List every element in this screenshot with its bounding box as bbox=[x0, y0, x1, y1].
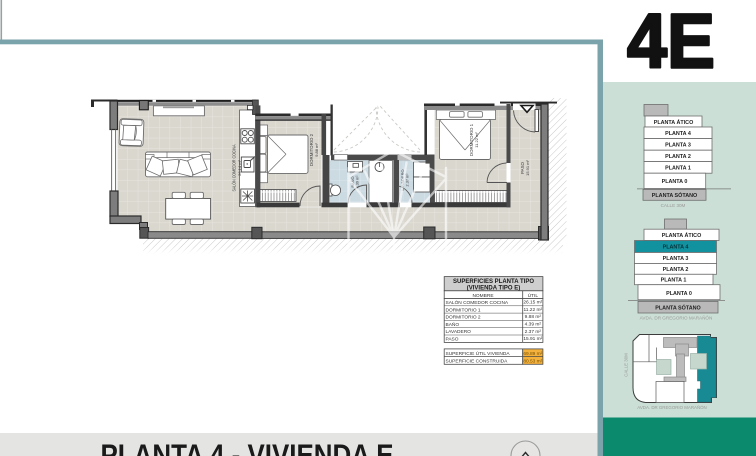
svg-text:(VIVIENDA TIPO E): (VIVIENDA TIPO E) bbox=[467, 286, 520, 292]
svg-text:DORMITORIO 2: DORMITORIO 2 bbox=[446, 315, 481, 321]
svg-text:PLANTA 4 - VIVIENDA E: PLANTA 4 - VIVIENDA E bbox=[101, 439, 394, 456]
svg-text:PLANTA SÓTANO: PLANTA SÓTANO bbox=[655, 304, 700, 312]
svg-text:CALLE 30M: CALLE 30M bbox=[624, 353, 629, 377]
svg-text:4E: 4E bbox=[627, 0, 715, 85]
svg-text:LAVADERO: LAVADERO bbox=[446, 329, 472, 335]
svg-text:26.14 m²: 26.14 m² bbox=[237, 159, 242, 175]
svg-text:PLANTA ÁTICO: PLANTA ÁTICO bbox=[662, 232, 702, 239]
svg-text:15.91 m²: 15.91 m² bbox=[525, 159, 530, 175]
svg-text:11.22 m²: 11.22 m² bbox=[524, 307, 543, 313]
svg-text:SALÓN COMEDOR COCINA: SALÓN COMEDOR COCINA bbox=[232, 144, 237, 191]
svg-text:PLANTA 4: PLANTA 4 bbox=[663, 245, 689, 251]
svg-text:ÚTIL: ÚTIL bbox=[528, 292, 539, 299]
svg-text:69.89 m²: 69.89 m² bbox=[523, 351, 542, 357]
svg-text:PLANTA 1: PLANTA 1 bbox=[665, 166, 691, 172]
svg-text:11.22 m²: 11.22 m² bbox=[474, 132, 479, 148]
svg-text:2.37 m²: 2.37 m² bbox=[406, 173, 410, 187]
svg-text:SUPERFICIE CONSTRUIDA: SUPERFICIE CONSTRUIDA bbox=[446, 358, 509, 364]
svg-text:DORMITORIO 1: DORMITORIO 1 bbox=[446, 307, 481, 313]
svg-text:PLANTA SÓTANO: PLANTA SÓTANO bbox=[652, 191, 697, 199]
svg-text:PLANTA 3: PLANTA 3 bbox=[663, 256, 689, 262]
svg-text:80.53 m²: 80.53 m² bbox=[523, 358, 542, 364]
svg-text:SALÓN COMEDOR COCINA: SALÓN COMEDOR COCINA bbox=[446, 299, 509, 306]
svg-text:PLANTA 0: PLANTA 0 bbox=[666, 291, 692, 297]
svg-text:BAÑO: BAÑO bbox=[446, 321, 460, 328]
svg-text:PLANTA 4: PLANTA 4 bbox=[665, 131, 691, 137]
svg-text:SUPERFICIE ÚTIL VIVIENDA: SUPERFICIE ÚTIL VIVIENDA bbox=[446, 350, 511, 357]
svg-text:SUPERFICIES PLANTA TIPO: SUPERFICIES PLANTA TIPO bbox=[453, 279, 534, 285]
svg-text:CALLE 30M: CALLE 30M bbox=[661, 203, 686, 208]
svg-text:AVDA. DR GREGORIO MARAÑÓN: AVDA. DR GREGORIO MARAÑÓN bbox=[637, 405, 706, 410]
svg-text:PLANTA 2: PLANTA 2 bbox=[665, 154, 691, 160]
svg-text:AVDA. DR GREGORIO MARAÑÓN: AVDA. DR GREGORIO MARAÑÓN bbox=[640, 315, 713, 321]
svg-text:2.37 m²: 2.37 m² bbox=[525, 329, 542, 335]
svg-text:PLANTA 0: PLANTA 0 bbox=[662, 179, 688, 185]
svg-text:PLANTA ÁTICO: PLANTA ÁTICO bbox=[654, 119, 694, 126]
svg-text:NOMBRE: NOMBRE bbox=[472, 293, 493, 299]
svg-text:9.88 m²: 9.88 m² bbox=[525, 314, 542, 320]
svg-text:26.15 m²: 26.15 m² bbox=[523, 300, 542, 306]
svg-text:9.88 m²: 9.88 m² bbox=[314, 143, 319, 157]
svg-text:15.91 m²: 15.91 m² bbox=[523, 336, 542, 342]
svg-text:4.39 m²: 4.39 m² bbox=[525, 322, 542, 328]
svg-text:PLANTA 2: PLANTA 2 bbox=[663, 267, 689, 273]
svg-text:PLANTA 3: PLANTA 3 bbox=[665, 143, 691, 149]
svg-text:PASO: PASO bbox=[446, 337, 459, 343]
svg-text:PLANTA 1: PLANTA 1 bbox=[661, 278, 687, 284]
